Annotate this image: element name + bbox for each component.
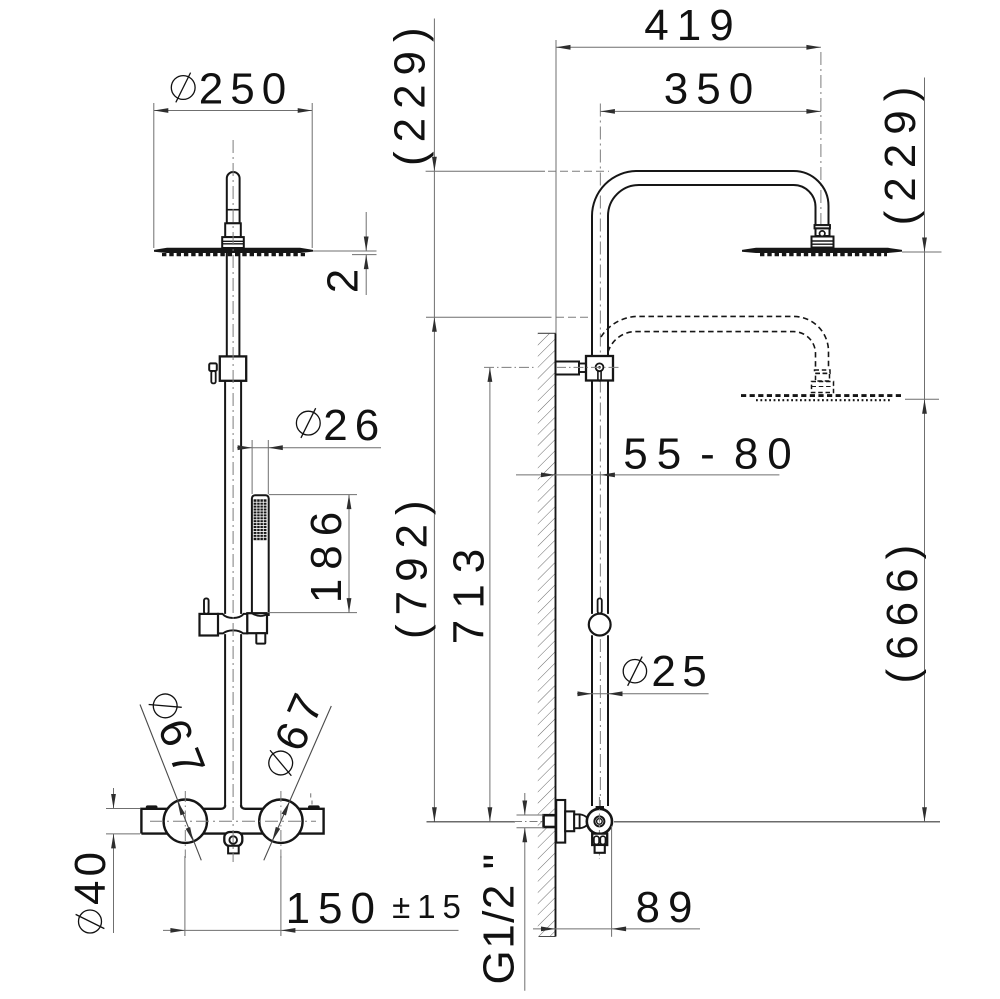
svg-text:150: 150	[286, 884, 383, 933]
svg-text:(792): (792)	[388, 491, 437, 639]
svg-text:(666): (666)	[878, 536, 927, 684]
svg-text:(229): (229)	[386, 18, 435, 166]
svg-text:713: 713	[445, 538, 494, 644]
svg-text:40: 40	[66, 848, 115, 905]
svg-text:350: 350	[664, 65, 761, 114]
svg-text:2: 2	[319, 269, 368, 293]
svg-text:G1/2 ": G1/2 "	[475, 852, 524, 984]
svg-text:55-80: 55-80	[623, 430, 801, 479]
svg-text:(229): (229)	[876, 78, 925, 226]
svg-text:25: 25	[651, 647, 713, 696]
svg-text:26: 26	[323, 401, 386, 450]
svg-text:250: 250	[199, 65, 293, 114]
svg-text:419: 419	[644, 1, 741, 50]
svg-text:89: 89	[636, 883, 701, 932]
svg-text:±15: ±15	[392, 888, 468, 925]
svg-text:186: 186	[302, 503, 351, 603]
